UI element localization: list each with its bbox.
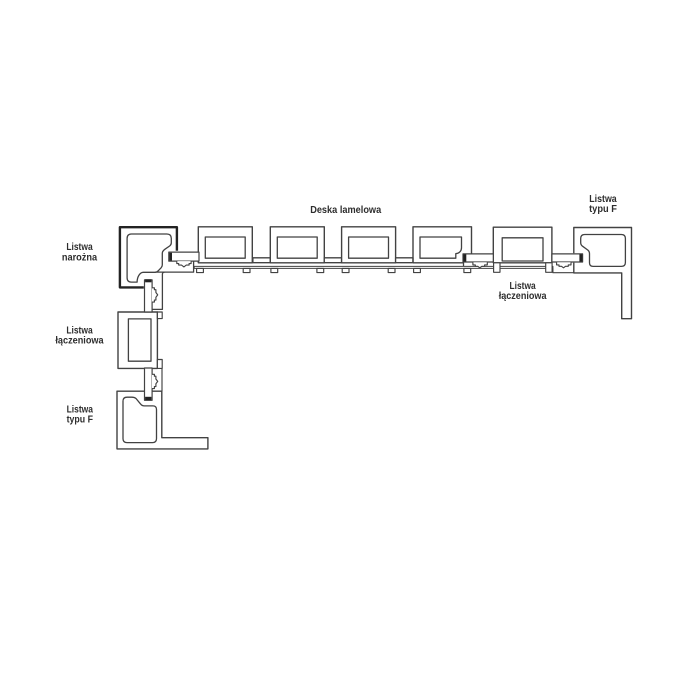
svg-text:typu F: typu F <box>589 204 617 215</box>
svg-text:typu F: typu F <box>67 414 93 425</box>
svg-text:łączeniowa: łączeniowa <box>55 335 103 346</box>
svg-text:narożna: narożna <box>62 252 98 263</box>
svg-text:Deska lamelowa: Deska lamelowa <box>310 205 381 216</box>
svg-text:łączeniowa: łączeniowa <box>499 291 547 302</box>
